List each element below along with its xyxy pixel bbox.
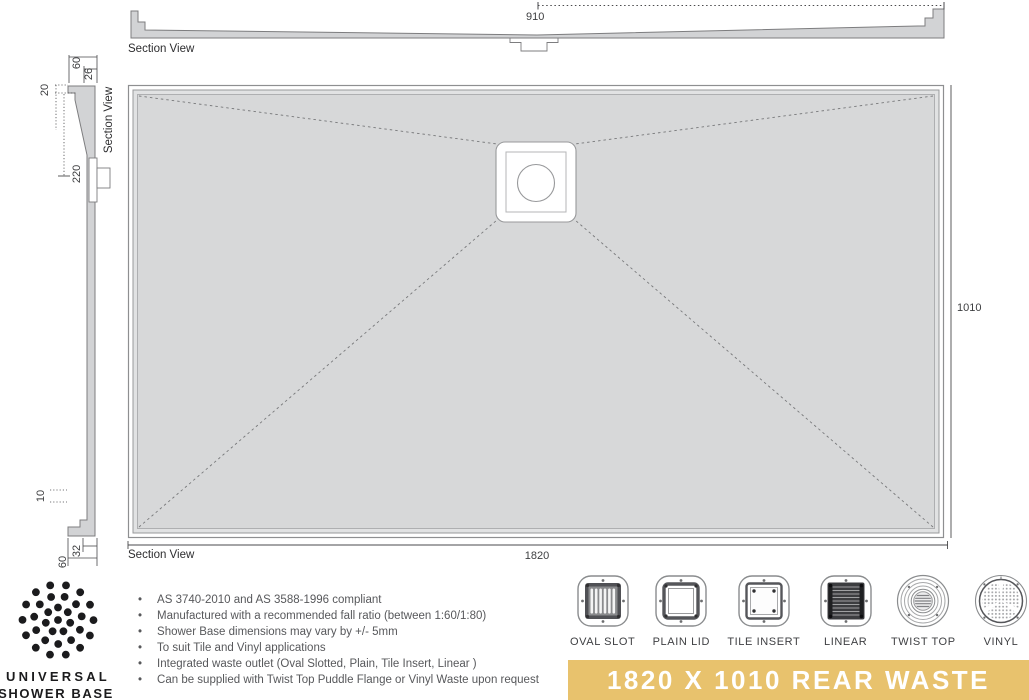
note-item: Integrated waste outlet (Oval Slotted, P… xyxy=(138,656,583,672)
technical-drawing: 910 Section View 60 26 20 220 xyxy=(0,0,1029,575)
tile-insert-icon xyxy=(736,573,792,629)
note-item: Shower Base dimensions may vary by +/- 5… xyxy=(138,624,583,640)
waste-option-twist-top: TWIST TOP xyxy=(891,573,956,648)
drain-outlet xyxy=(496,142,576,222)
side-section-view: 60 26 20 220 Section View 10 32 60 xyxy=(35,55,115,568)
twist-top-icon xyxy=(895,573,951,629)
waste-option-plain-lid: PLAIN LID xyxy=(653,573,710,648)
plain-lid-icon xyxy=(653,573,709,629)
spec-sheet: 910 Section View 60 26 20 220 xyxy=(0,0,1029,700)
product-banner-label: 1820 X 1010 REAR WASTE xyxy=(607,665,990,696)
dim-60-bottom: 60 xyxy=(57,556,69,568)
waste-option-label: LINEAR xyxy=(824,636,867,648)
waste-options-row: OVAL SLOT PLAIN LID xyxy=(570,573,1029,648)
dim-1010: 1010 xyxy=(957,302,981,314)
dim-1820: 1820 xyxy=(525,550,549,562)
waste-option-label: VINYL xyxy=(984,636,1019,648)
waste-option-label: OVAL SLOT xyxy=(570,636,635,648)
note-item: AS 3740-2010 and AS 3588-1996 compliant xyxy=(138,592,583,608)
dim-910: 910 xyxy=(526,11,544,23)
dots-logo xyxy=(16,578,100,662)
waste-option-vinyl: VINYL xyxy=(973,573,1029,648)
dim-10: 10 xyxy=(35,490,47,502)
waste-boss-top xyxy=(510,38,558,51)
product-banner: 1820 X 1010 REAR WASTE xyxy=(568,660,1029,700)
waste-boss-side xyxy=(97,168,110,188)
top-section-label: Section View xyxy=(128,43,195,55)
brand-name-line2: SHOWER BASE xyxy=(0,686,116,700)
oval-slot-icon xyxy=(575,573,631,629)
brand-name-line1: UNIVERSAL xyxy=(0,669,116,684)
feature-notes: AS 3740-2010 and AS 3588-1996 compliant … xyxy=(138,592,583,688)
brand-logo: UNIVERSAL SHOWER BASE xyxy=(0,578,116,700)
top-section-view: 910 Section View xyxy=(128,2,944,55)
waste-option-tile-insert: TILE INSERT xyxy=(727,573,800,648)
dim-220: 220 xyxy=(71,165,83,183)
waste-option-label: TILE INSERT xyxy=(727,636,800,648)
note-item: Can be supplied with Twist Top Puddle Fl… xyxy=(138,672,583,688)
waste-option-label: TWIST TOP xyxy=(891,636,956,648)
linear-icon xyxy=(818,573,874,629)
plan-view: 1010 1820 Section View xyxy=(128,85,981,562)
waste-option-label: PLAIN LID xyxy=(653,636,710,648)
waste-option-linear: LINEAR xyxy=(818,573,874,648)
drain-circle xyxy=(518,165,555,202)
vinyl-icon xyxy=(973,573,1029,629)
dim-32: 32 xyxy=(71,545,83,557)
waste-option-oval-slot: OVAL SLOT xyxy=(570,573,635,648)
side-section-label: Section View xyxy=(103,86,115,153)
bottom-section-label: Section View xyxy=(128,549,195,561)
note-item: Manufactured with a recommended fall rat… xyxy=(138,608,583,624)
dim-20: 20 xyxy=(39,84,51,96)
dim-26: 26 xyxy=(83,68,95,80)
note-item: To suit Tile and Vinyl applications xyxy=(138,640,583,656)
dim-60-top: 60 xyxy=(71,57,83,69)
